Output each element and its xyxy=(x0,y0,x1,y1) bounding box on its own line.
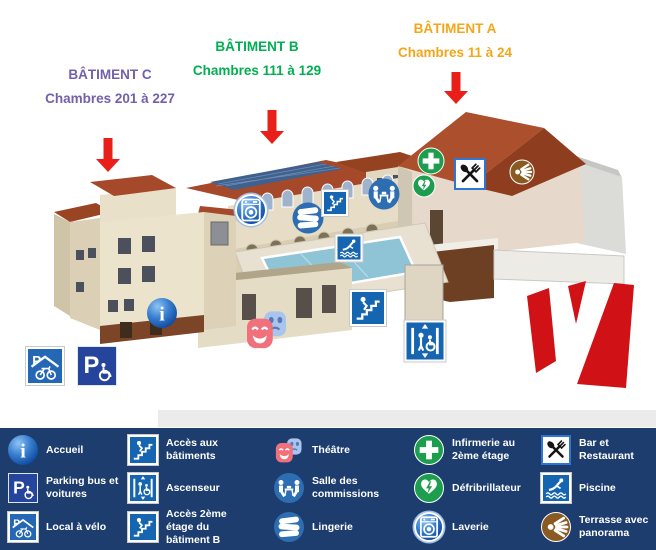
stairs-icon xyxy=(352,292,384,324)
legend-item-ascenseur: Ascenseur xyxy=(128,469,274,507)
green-cross-icon xyxy=(419,149,444,174)
infirmerie-marker xyxy=(418,148,445,175)
stairs-icon xyxy=(128,435,158,465)
legend-item-theatre: Théâtre xyxy=(274,431,414,469)
legend-label: Accès 2ème étage du bâtiment B xyxy=(166,508,254,547)
linen-icon xyxy=(274,512,304,542)
arrow-batiment-a xyxy=(444,72,468,104)
acces-batiments-marker xyxy=(322,190,348,216)
batiment-a-rooms: Chambres 11 à 24 xyxy=(360,46,550,61)
terrace-sun-icon xyxy=(541,512,571,542)
swimmer-icon xyxy=(541,473,571,503)
restaurant-icon xyxy=(456,160,484,188)
parking-icon xyxy=(78,347,116,385)
legend-label: Ascenseur xyxy=(166,482,220,495)
defibrillator-icon xyxy=(414,473,444,503)
acces-2eme-etage-marker xyxy=(350,290,386,326)
legend-item-acces-2eme: Accès 2ème étage du bâtiment B xyxy=(128,508,274,547)
stairs-icon xyxy=(324,192,346,214)
legend-label: Accès aux bâtiments xyxy=(166,437,254,463)
terrasse-marker xyxy=(510,160,535,185)
parking-icon xyxy=(8,473,38,503)
theater-masks-icon xyxy=(274,436,304,465)
site-plan-page: { "title_labels": { "batiment_c": {"name… xyxy=(0,0,656,550)
lingerie-marker xyxy=(293,203,324,234)
divider-strip xyxy=(158,410,656,427)
legend-item-acces-batiments: Accès aux bâtiments xyxy=(128,431,274,469)
legend-item-defibrillateur: Défribrillateur xyxy=(414,469,541,507)
ascenseur-marker xyxy=(405,321,446,362)
legend-label: Lingerie xyxy=(312,521,353,534)
info-icon xyxy=(8,435,38,465)
legend-item-lingerie: Lingerie xyxy=(274,508,414,547)
bar-restaurant-marker xyxy=(454,158,486,190)
arrow-batiment-c xyxy=(96,138,120,172)
theatre-marker xyxy=(244,310,290,350)
theater-masks-icon xyxy=(244,310,290,350)
legend-item-laverie: Laverie xyxy=(414,508,541,547)
legend: Accueil Parking bus et voitures Local à … xyxy=(0,428,656,550)
elevator-icon xyxy=(407,323,444,360)
legend-item-infirmerie: Infirmerie au 2ème étage xyxy=(414,431,541,469)
legend-label: Parking bus et voitures xyxy=(46,475,128,501)
site-map: BÂTIMENT C Chambres 201 à 227 BÂTIMENT B… xyxy=(0,0,656,428)
parking-marker xyxy=(77,346,117,386)
stairs-icon xyxy=(128,512,158,542)
meeting-table-icon xyxy=(369,179,400,210)
accueil-marker xyxy=(147,298,177,328)
legend-item-local-velo: Local à vélo xyxy=(8,508,128,547)
laverie-marker xyxy=(235,194,267,226)
restaurant-icon xyxy=(541,435,571,465)
bike-shed-icon xyxy=(8,512,38,542)
batiment-b-title: BÂTIMENT B xyxy=(162,40,352,55)
legend-item-terrasse: Terrasse avec panorama xyxy=(541,508,656,547)
brand-logo xyxy=(527,281,634,388)
terrace-sun-icon xyxy=(511,161,534,184)
defibrillateur-marker xyxy=(413,175,436,198)
legend-label: Laverie xyxy=(452,521,489,534)
legend-label: Piscine xyxy=(579,482,616,495)
legend-label: Terrasse avec panorama xyxy=(579,514,656,540)
info-icon xyxy=(147,298,177,328)
batiment-a-title: BÂTIMENT A xyxy=(360,22,550,37)
legend-item-parking: Parking bus et voitures xyxy=(8,469,128,507)
laundry-icon xyxy=(237,196,265,224)
legend-item-bar-restaurant: Bar et Restaurant xyxy=(541,431,656,469)
green-cross-icon xyxy=(414,435,444,465)
legend-label: Infirmerie au 2ème étage xyxy=(452,437,540,463)
legend-label: Défribrillateur xyxy=(452,482,521,495)
legend-item-accueil: Accueil xyxy=(8,431,128,469)
meeting-table-icon xyxy=(274,473,304,503)
legend-label: Salle des commissions xyxy=(312,475,400,501)
batiment-c-rooms: Chambres 201 à 227 xyxy=(15,92,205,107)
linen-icon xyxy=(293,203,324,234)
arrow-batiment-b xyxy=(260,110,284,144)
legend-label: Accueil xyxy=(46,444,83,457)
legend-label: Local à vélo xyxy=(46,521,106,534)
piscine-marker xyxy=(336,235,363,262)
local-velo-marker xyxy=(26,347,64,385)
legend-item-piscine: Piscine xyxy=(541,469,656,507)
bike-shed-icon xyxy=(28,349,62,383)
swimmer-icon xyxy=(338,237,361,260)
laundry-icon xyxy=(414,512,444,542)
defibrillator-icon xyxy=(414,176,435,197)
batiment-b-rooms: Chambres 111 à 129 xyxy=(162,64,352,79)
salle-commissions-marker xyxy=(369,179,400,210)
elevator-icon xyxy=(128,473,158,503)
legend-label: Théâtre xyxy=(312,444,350,457)
legend-item-salle-commissions: Salle des commissions xyxy=(274,469,414,507)
legend-label: Bar et Restaurant xyxy=(579,437,656,463)
